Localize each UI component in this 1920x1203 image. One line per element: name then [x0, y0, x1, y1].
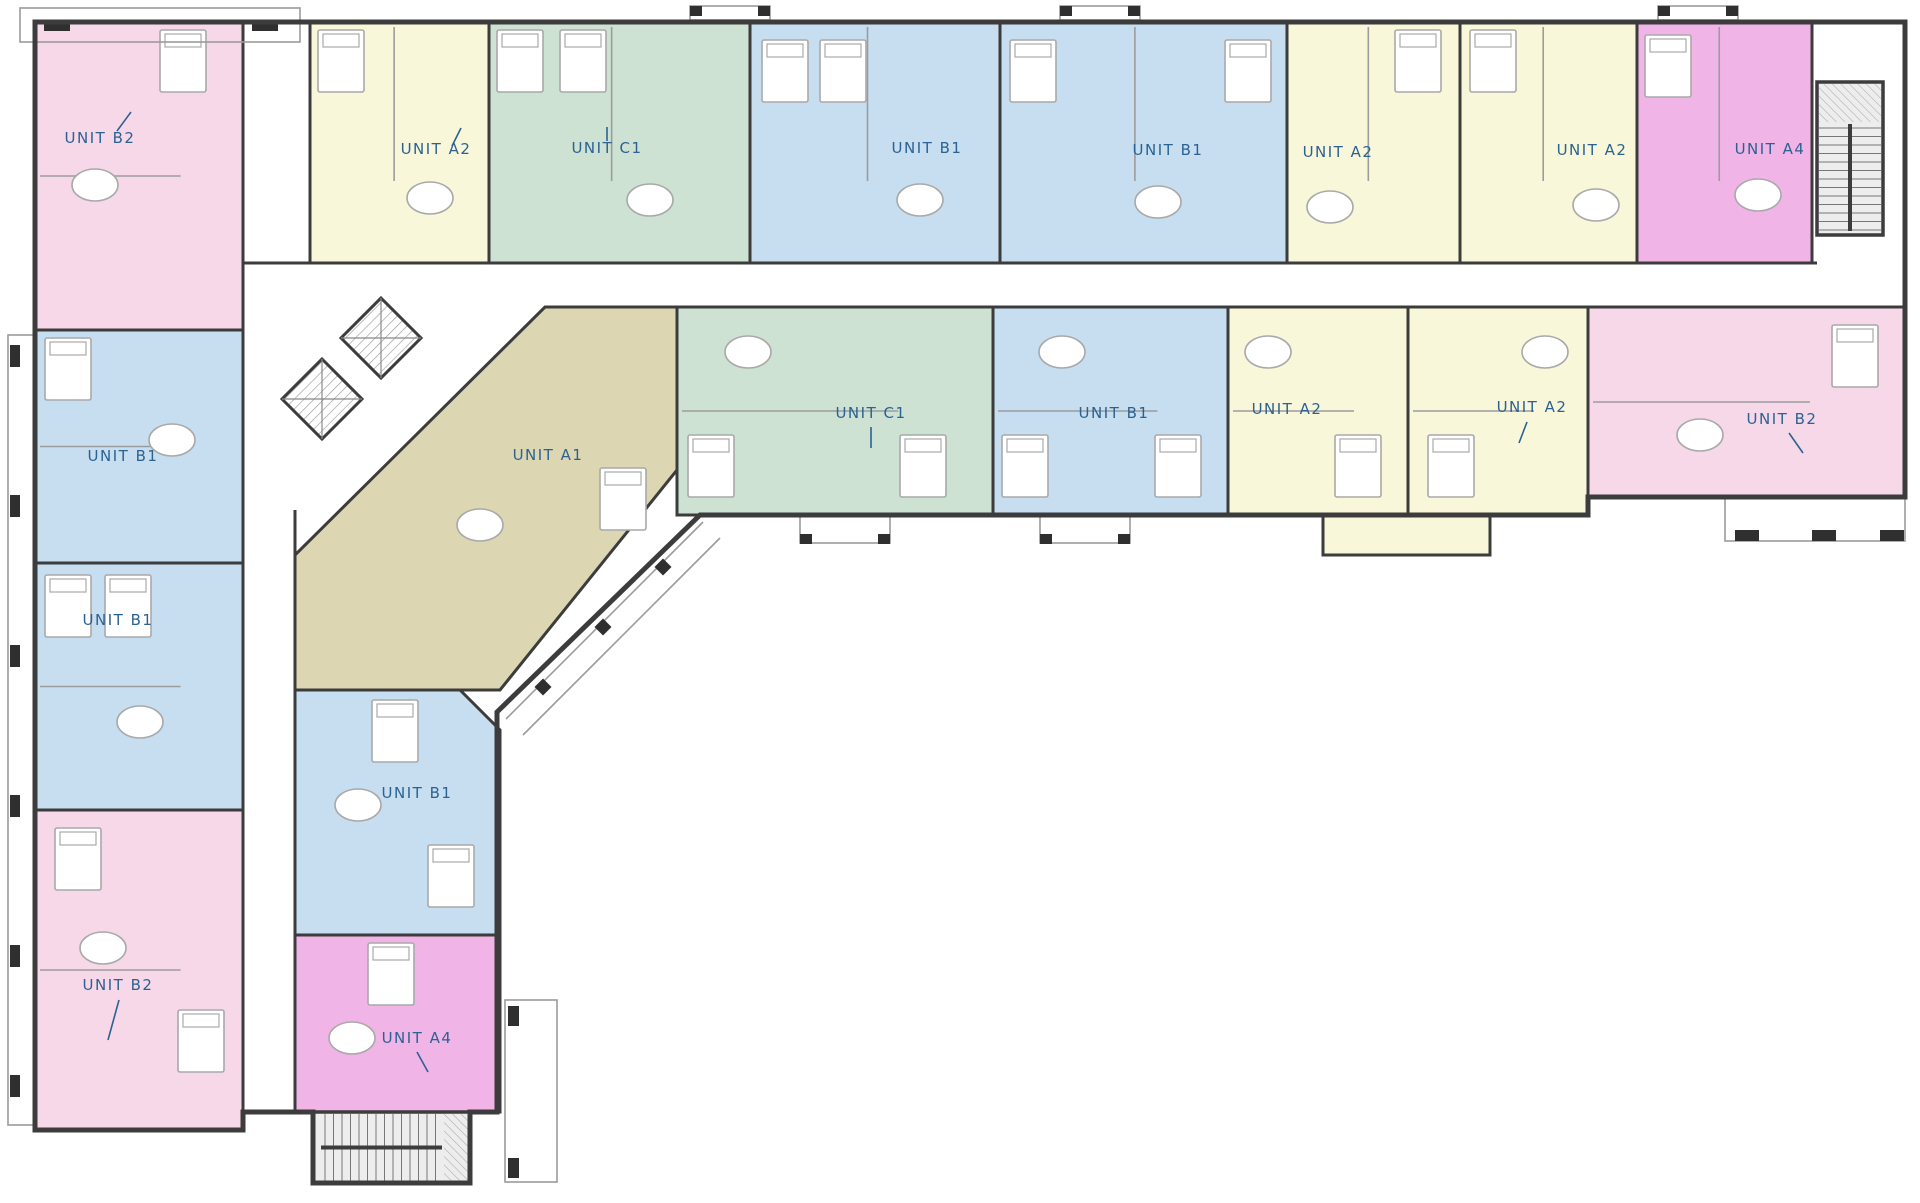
unit-label-c1-n: UNIT C1	[571, 139, 642, 157]
unit-label-b1-m: UNIT B1	[1079, 404, 1150, 422]
porch-post	[878, 534, 890, 544]
pillow-icon	[905, 439, 941, 452]
porch-post	[595, 619, 612, 636]
stair-landing-hatch	[444, 1114, 468, 1181]
elevator-layer	[282, 298, 421, 439]
unit-label-a2-n2: UNIT A2	[1557, 141, 1628, 159]
pillow-icon	[1230, 44, 1266, 57]
porch-post	[1735, 530, 1759, 541]
porch-outline	[800, 515, 890, 543]
unit-label-a2-m1: UNIT A2	[1252, 400, 1323, 418]
porch-outline	[8, 335, 34, 1125]
table-icon	[725, 336, 771, 368]
floor-plan-sheet: UNIT B2UNIT A2UNIT C1UNIT B1UNIT B1UNIT …	[0, 0, 1920, 1203]
table-icon	[1522, 336, 1568, 368]
table-icon	[457, 509, 503, 541]
unit-label-b1-w1: UNIT B1	[88, 447, 159, 465]
porch-post	[655, 559, 672, 576]
pillow-icon	[1007, 439, 1043, 452]
pillow-icon	[825, 44, 861, 57]
pillow-icon	[1400, 34, 1436, 47]
pillow-icon	[1340, 439, 1376, 452]
pillow-icon	[605, 472, 641, 485]
unit-label-a4-n: UNIT A4	[1735, 140, 1806, 158]
table-icon	[897, 184, 943, 216]
unit-label-b2-sw: UNIT B2	[83, 976, 154, 994]
pillow-icon	[767, 44, 803, 57]
table-icon	[117, 706, 163, 738]
unit-label-b1-n1: UNIT B1	[892, 139, 963, 157]
table-icon	[335, 789, 381, 821]
porch-post	[508, 1006, 519, 1026]
porch-outline	[505, 1000, 557, 1182]
table-icon	[407, 182, 453, 214]
pillow-icon	[1650, 39, 1686, 52]
pillow-icon	[1433, 439, 1469, 452]
porch-post	[1128, 6, 1140, 16]
table-icon	[329, 1022, 375, 1054]
table-icon	[1245, 336, 1291, 368]
a2-pair-south-bay	[1323, 515, 1490, 555]
porch-post	[1726, 6, 1738, 16]
unit-label-a4-e: UNIT A4	[382, 1029, 453, 1047]
pillow-icon	[373, 947, 409, 960]
pillow-icon	[1160, 439, 1196, 452]
unit-label-c1-m: UNIT C1	[835, 404, 906, 422]
table-icon	[627, 184, 673, 216]
porch-post	[10, 495, 20, 517]
table-icon	[1039, 336, 1085, 368]
table-icon	[1677, 419, 1723, 451]
pillow-icon	[377, 704, 413, 717]
unit-label-a2-m2: UNIT A2	[1497, 398, 1568, 416]
pillow-icon	[565, 34, 601, 47]
porch-post	[1040, 534, 1052, 544]
unit-label-b1-e: UNIT B1	[382, 784, 453, 802]
table-icon	[72, 169, 118, 201]
porch-post	[690, 6, 702, 16]
pillow-icon	[1015, 44, 1051, 57]
table-icon	[1135, 186, 1181, 218]
pillow-icon	[1475, 34, 1511, 47]
porch-post	[10, 795, 20, 817]
stair-landing-hatch	[1819, 84, 1881, 122]
pillow-icon	[433, 849, 469, 862]
pillow-icon	[502, 34, 538, 47]
stair-s	[313, 1112, 470, 1183]
porch-post	[1118, 534, 1130, 544]
floor-plan-drawing: UNIT B2UNIT A2UNIT C1UNIT B1UNIT B1UNIT …	[0, 0, 1920, 1203]
unit-label-a2-n: UNIT A2	[401, 140, 472, 158]
porch-post	[10, 645, 20, 667]
pillow-icon	[693, 439, 729, 452]
pillow-icon	[183, 1014, 219, 1027]
pillow-icon	[50, 342, 86, 355]
porch-post	[1060, 6, 1072, 16]
unit-label-a1: UNIT A1	[513, 446, 584, 464]
pillow-icon	[1837, 329, 1873, 342]
pillow-icon	[110, 579, 146, 592]
porch-outline	[1040, 515, 1130, 543]
unit-label-b1-n2: UNIT B1	[1133, 141, 1204, 159]
stair-ne	[1817, 82, 1883, 235]
unit-label-b2-m: UNIT B2	[1747, 410, 1818, 428]
table-icon	[1735, 179, 1781, 211]
porch-post	[10, 945, 20, 967]
porch-post	[1658, 6, 1670, 16]
porch-post	[535, 679, 552, 696]
bay-layer	[1323, 515, 1490, 555]
porch-post	[10, 1075, 20, 1097]
porch-post	[800, 534, 812, 544]
porch-post	[508, 1158, 519, 1178]
unit-label-b2-nw: UNIT B2	[65, 129, 136, 147]
unit-label-b1-w2: UNIT B1	[83, 611, 154, 629]
unit-label-a2-n1: UNIT A2	[1303, 143, 1374, 161]
pillow-icon	[50, 579, 86, 592]
table-icon	[1307, 191, 1353, 223]
porch-post	[1880, 530, 1904, 541]
table-icon	[1573, 189, 1619, 221]
porch-post	[1812, 530, 1836, 541]
pillow-icon	[60, 832, 96, 845]
unit-fill-layer	[35, 22, 1905, 1130]
pillow-icon	[165, 34, 201, 47]
porch-post	[10, 345, 20, 367]
porch-post	[758, 6, 770, 16]
table-icon	[80, 932, 126, 964]
pillow-icon	[323, 34, 359, 47]
